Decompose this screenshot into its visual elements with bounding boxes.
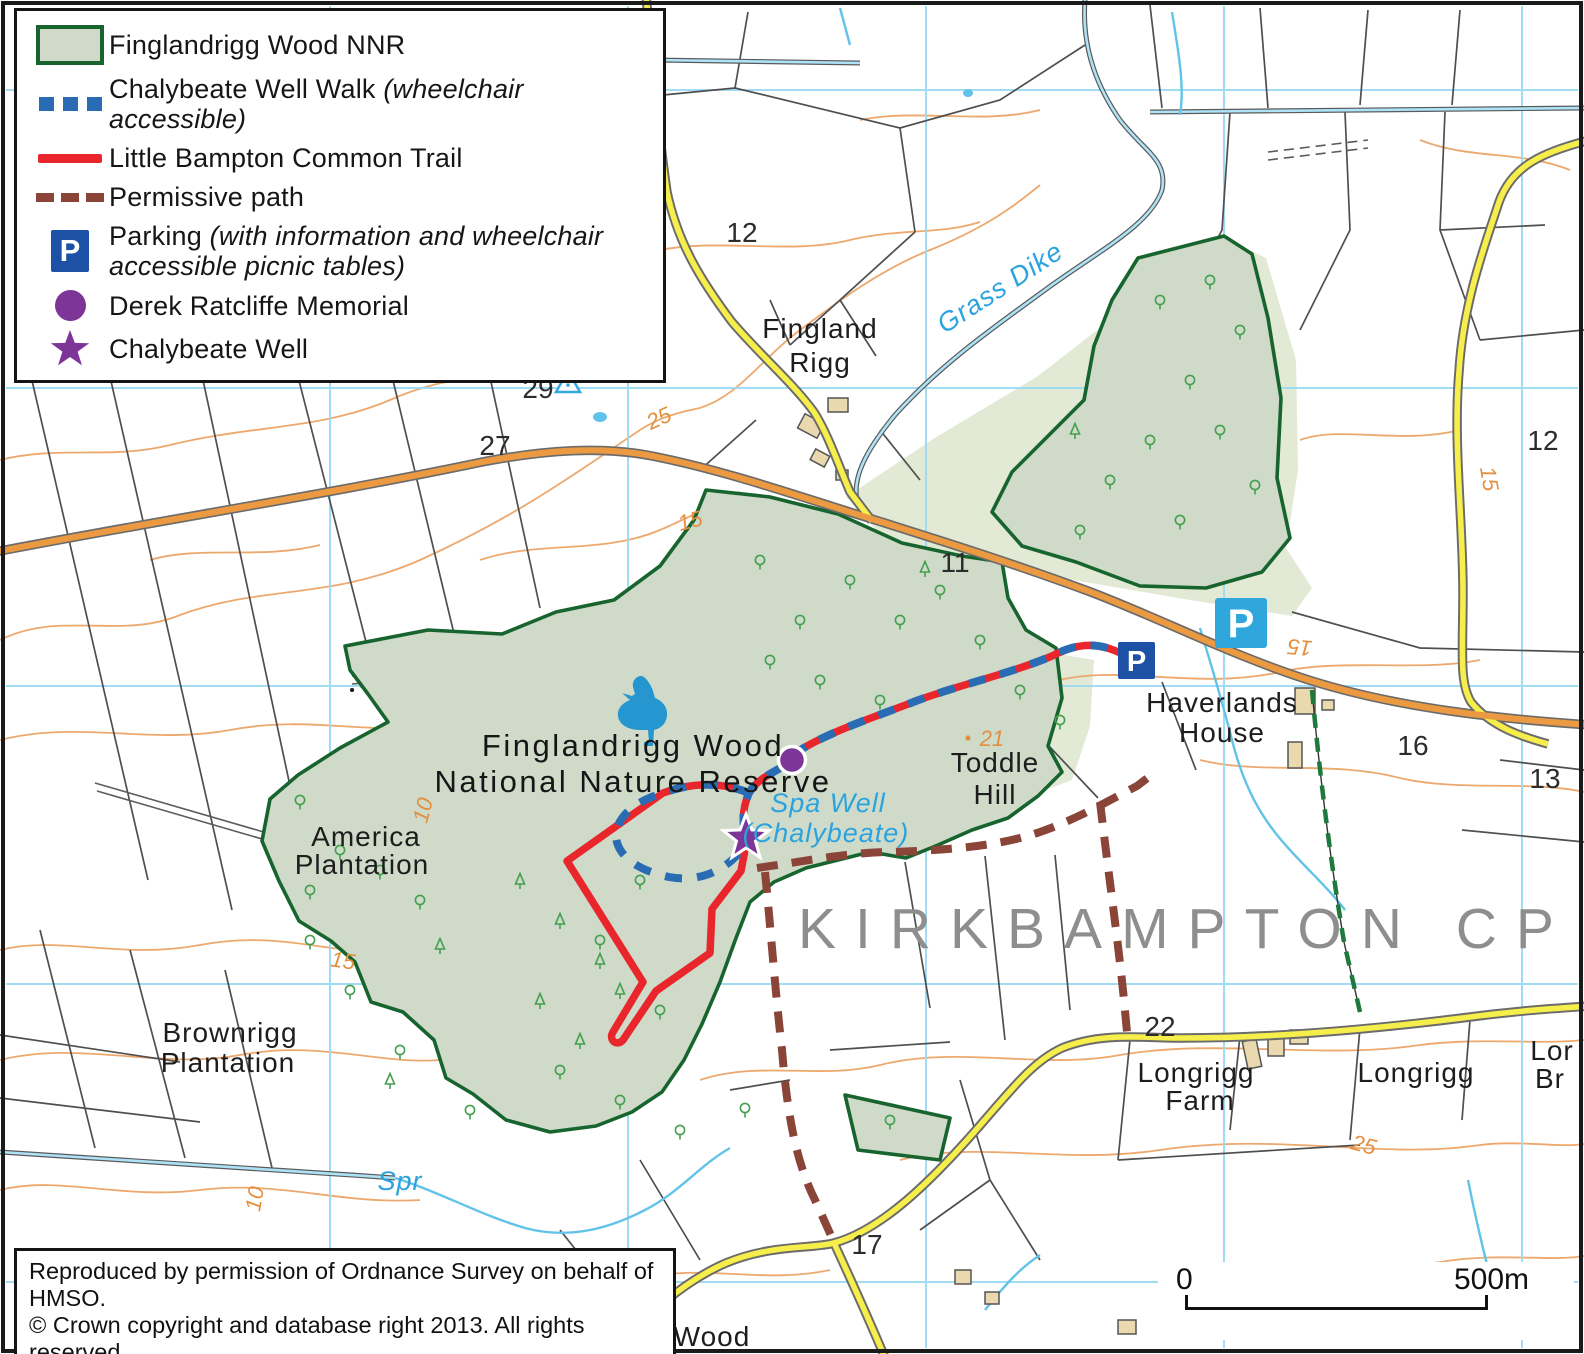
- svg-text:12: 12: [1527, 425, 1558, 456]
- legend-item-memorial: Derek Ratcliffe Memorial: [31, 290, 653, 321]
- svg-text:House: House: [1179, 717, 1265, 748]
- parking-symbol-small: P: [1118, 642, 1155, 679]
- svg-text:25: 25: [1348, 1129, 1380, 1160]
- attribution-panel: Reproduced by permission of Ordnance Sur…: [14, 1248, 676, 1354]
- legend-item-parking: P Parking (with information and wheelcha…: [31, 221, 653, 281]
- label-wood-partial: Wood: [674, 1321, 751, 1352]
- svg-text:11: 11: [940, 547, 969, 578]
- label-longrigg: Longrigg: [1358, 1057, 1475, 1088]
- legend-item-permissive-path: Permissive path: [31, 182, 653, 212]
- attribution-line2: © Crown copyright and database right 201…: [29, 1312, 663, 1354]
- red-line-icon: [38, 154, 102, 163]
- legend-label: Chalybeate Well Walk (wheelchair accessi…: [109, 74, 653, 134]
- parking-letter-small: P: [1127, 646, 1146, 678]
- legend-label: Chalybeate Well: [109, 334, 308, 364]
- map-page: P P Fingland Rigg Grass Dike Finglandrig…: [0, 0, 1584, 1354]
- attribution-line1: Reproduced by permission of Ordnance Sur…: [29, 1258, 663, 1312]
- label-kirkbampton-cp: KIRKBAMPTON CP: [798, 897, 1573, 961]
- svg-text:Plantation: Plantation: [295, 849, 430, 880]
- legend-label: Parking (with information and wheelchair…: [109, 221, 603, 281]
- scale-bar: 0 500m: [1158, 1262, 1574, 1340]
- svg-text:15: 15: [329, 946, 357, 974]
- legend-panel: Finglandrigg Wood NNR Chalybeate Well Wa…: [14, 8, 666, 383]
- blue-dash-icon: [39, 97, 102, 111]
- label-toddle-hill: Toddle: [951, 747, 1040, 778]
- legend-item-chalybeate-well: Chalybeate Well: [31, 330, 653, 368]
- svg-text:10: 10: [240, 1184, 269, 1213]
- legend-label: Finglandrigg Wood NNR: [109, 30, 405, 60]
- label-longrigg-farm: Longrigg: [1138, 1057, 1255, 1088]
- scale-zero-label: 0: [1176, 1263, 1193, 1297]
- parking-letter-large: P: [1228, 602, 1255, 646]
- scale-max-label: 500m: [1454, 1263, 1529, 1297]
- purple-circle-icon: [55, 290, 86, 321]
- public-footpath: [1312, 690, 1360, 1012]
- svg-text:Farm: Farm: [1165, 1085, 1234, 1116]
- label-america-plantation: America: [311, 821, 421, 852]
- scale-bar-line: [1185, 1295, 1488, 1310]
- label-brownrigg-plantation: Brownrigg: [162, 1017, 297, 1048]
- brown-dash-icon: [36, 193, 104, 202]
- svg-text:Plantation: Plantation: [161, 1047, 296, 1078]
- label-spr: Spr: [377, 1166, 422, 1196]
- label-spa-well: Spa Well: [770, 788, 886, 818]
- spot-height: 21: [979, 726, 1004, 751]
- contour-label: 25: [642, 401, 676, 435]
- svg-text:Hill: Hill: [974, 779, 1017, 810]
- svg-text:27: 27: [479, 430, 510, 461]
- svg-text:15: 15: [1286, 634, 1313, 661]
- svg-text:13: 13: [1529, 763, 1560, 794]
- label-longrigg-partial: Lor: [1530, 1035, 1573, 1066]
- legend-label: Permissive path: [109, 182, 304, 212]
- svg-text:(Chalybeate): (Chalybeate): [743, 818, 910, 848]
- nnr-swatch-icon: [36, 25, 104, 65]
- legend-item-little-bampton-trail: Little Bampton Common Trail: [31, 143, 653, 173]
- svg-text:Br: Br: [1535, 1063, 1565, 1094]
- purple-star-icon: [50, 330, 90, 368]
- legend-label: Little Bampton Common Trail: [109, 143, 463, 173]
- legend-item-nnr: Finglandrigg Wood NNR: [31, 25, 653, 65]
- svg-text:Rigg: Rigg: [789, 347, 851, 378]
- label-nnr-name: Finglandrigg Wood: [482, 728, 784, 763]
- svg-text:16: 16: [1397, 730, 1428, 761]
- label-fingland-rigg: Fingland: [762, 313, 877, 344]
- field-number: 12: [726, 217, 757, 248]
- label-haverlands-house: Haverlands: [1146, 687, 1298, 718]
- legend-item-chalybeate-well-walk: Chalybeate Well Walk (wheelchair accessi…: [31, 74, 653, 134]
- parking-symbol-large: P: [1215, 598, 1267, 648]
- svg-text:15: 15: [1475, 464, 1504, 493]
- legend-label: Derek Ratcliffe Memorial: [109, 291, 409, 321]
- svg-text:22: 22: [1144, 1011, 1175, 1042]
- svg-text:17: 17: [851, 1229, 882, 1260]
- parking-icon: P: [51, 230, 89, 272]
